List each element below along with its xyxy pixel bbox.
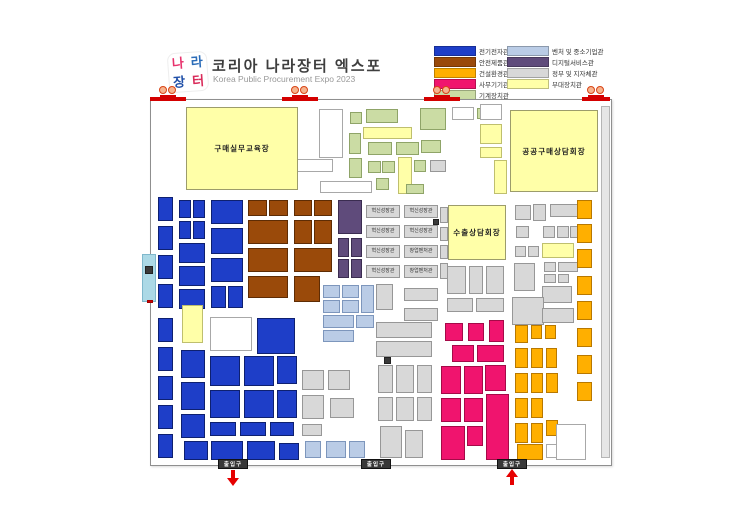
room: 수출상담회장 xyxy=(448,205,506,260)
booth xyxy=(294,220,312,244)
booth xyxy=(515,325,528,343)
booth xyxy=(417,365,432,393)
booth xyxy=(494,160,507,194)
booth xyxy=(477,345,504,362)
entrance-gate xyxy=(282,97,318,101)
mascot-icon xyxy=(291,86,299,94)
booth xyxy=(351,259,362,278)
legend-swatch xyxy=(507,79,549,89)
booth xyxy=(467,426,483,446)
booth xyxy=(248,276,288,298)
labeled-booth: 혁신성장관 xyxy=(404,225,438,238)
legend-swatch xyxy=(507,68,549,78)
booth xyxy=(404,288,438,301)
booth xyxy=(601,106,610,458)
booth xyxy=(396,365,414,393)
booth xyxy=(441,398,461,422)
legend-label: 디지털서비스관 xyxy=(552,57,594,67)
booth xyxy=(269,200,288,216)
booth xyxy=(516,226,529,238)
labeled-booth: 창업벤처관 xyxy=(404,245,438,258)
booth xyxy=(514,263,535,291)
booth xyxy=(464,366,483,394)
booth xyxy=(515,348,528,368)
booth xyxy=(182,305,203,343)
booth xyxy=(384,357,391,364)
booth xyxy=(210,356,240,386)
booth xyxy=(368,161,381,173)
booth-label: 혁신성장관 xyxy=(409,209,432,215)
labeled-booth: 혁신성장관 xyxy=(404,205,438,218)
booth xyxy=(447,298,473,312)
booth xyxy=(184,441,208,460)
booth xyxy=(531,325,542,339)
booth xyxy=(556,424,586,460)
legend-swatch xyxy=(434,57,476,67)
booth xyxy=(480,104,502,120)
booth xyxy=(179,221,191,239)
booth xyxy=(181,414,205,438)
entrance-arrow-down-icon xyxy=(227,478,239,486)
booth xyxy=(445,323,463,341)
booth xyxy=(342,300,359,313)
mascot-icon xyxy=(596,86,604,94)
booth xyxy=(440,207,448,223)
booth xyxy=(179,266,205,286)
booth xyxy=(376,341,432,357)
booth xyxy=(376,178,389,190)
booth xyxy=(577,249,592,268)
booth xyxy=(314,200,332,216)
booth xyxy=(441,366,461,394)
booth xyxy=(338,200,362,234)
mascot-icon xyxy=(300,86,308,94)
booth xyxy=(366,109,398,123)
gate-caption xyxy=(434,95,450,97)
booth xyxy=(531,373,543,393)
booth xyxy=(211,228,243,254)
booth xyxy=(279,443,299,460)
booth xyxy=(528,246,539,257)
booth xyxy=(211,286,226,308)
booth xyxy=(211,441,243,460)
room: 공공구매상담회장 xyxy=(510,110,598,192)
booth xyxy=(158,347,173,371)
entrance-gate xyxy=(424,97,460,101)
booth xyxy=(486,394,509,460)
booth xyxy=(376,284,393,310)
booth xyxy=(145,266,153,274)
booth xyxy=(368,142,392,155)
booth xyxy=(314,220,332,244)
booth xyxy=(543,226,555,238)
labeled-booth: 혁신성장관 xyxy=(366,205,400,218)
booth xyxy=(210,390,240,418)
booth xyxy=(515,373,528,393)
booth-label: 창업벤처관 xyxy=(409,249,432,255)
legend-label: 부대장치관 xyxy=(552,79,582,89)
booth xyxy=(544,262,556,272)
booth xyxy=(452,345,474,362)
booth xyxy=(158,434,173,458)
booth-label: 혁신성장관 xyxy=(371,269,394,275)
booth xyxy=(342,285,359,298)
booth xyxy=(181,350,205,378)
booth xyxy=(512,297,544,325)
booth xyxy=(244,356,274,386)
page-title: 코리아 나라장터 엑스포 xyxy=(212,55,382,76)
booth xyxy=(531,423,543,443)
booth xyxy=(270,422,294,436)
booth xyxy=(577,276,592,295)
room-label: 수출상담회장 xyxy=(453,227,500,238)
booth xyxy=(417,397,432,421)
booth xyxy=(533,204,546,221)
legend-label: 전기전자관 xyxy=(479,46,509,56)
booth xyxy=(577,328,592,347)
booth xyxy=(452,107,474,120)
booth xyxy=(248,248,288,272)
booth xyxy=(558,274,569,283)
legend-swatch xyxy=(507,57,549,67)
entrance-gate xyxy=(150,97,186,101)
booth-label: 혁신성장관 xyxy=(371,229,394,235)
labeled-booth: 혁신성장관 xyxy=(366,245,400,258)
labeled-booth: 혁신성장관 xyxy=(366,265,400,278)
booth-label: 혁신성장관 xyxy=(371,209,394,215)
booth xyxy=(351,238,362,257)
booth xyxy=(211,258,243,282)
booth xyxy=(486,266,504,294)
booth xyxy=(378,365,393,393)
booth xyxy=(244,390,274,418)
legend-label: 사무기기관 xyxy=(479,79,509,89)
booth-label: 혁신성장관 xyxy=(409,229,432,235)
booth xyxy=(179,200,191,218)
booth xyxy=(323,300,340,313)
entrance-label: 출입구 xyxy=(361,459,391,469)
room: 구매실무교육장 xyxy=(186,107,298,190)
booth xyxy=(542,243,574,258)
booth xyxy=(531,348,543,368)
mascot-icon xyxy=(168,86,176,94)
logo-char: 라 xyxy=(190,53,203,71)
booth xyxy=(248,220,288,244)
legend-label: 안전제품관 xyxy=(479,57,509,67)
booth xyxy=(158,197,173,221)
booth xyxy=(240,422,266,436)
booth xyxy=(349,441,365,458)
mascot-icon xyxy=(433,86,441,94)
booth xyxy=(378,397,393,421)
room-label: 공공구매상담회장 xyxy=(522,146,585,157)
booth xyxy=(558,262,578,272)
booth xyxy=(577,382,592,401)
booth xyxy=(577,200,592,219)
booth xyxy=(247,441,275,460)
booth xyxy=(515,205,531,220)
booth xyxy=(545,325,556,339)
booth-label: 혁신성장관 xyxy=(371,249,394,255)
booth xyxy=(349,133,361,154)
booth xyxy=(294,276,320,302)
booth xyxy=(323,315,354,328)
mascot-icon xyxy=(159,86,167,94)
booth xyxy=(210,317,252,351)
booth xyxy=(577,301,592,320)
booth xyxy=(193,221,205,239)
booth xyxy=(328,370,350,390)
booth xyxy=(577,355,592,374)
booth xyxy=(158,226,173,250)
booth xyxy=(480,124,502,144)
booth xyxy=(380,426,402,458)
booth xyxy=(557,226,569,238)
booth xyxy=(142,254,156,302)
page-subtitle: Korea Public Procurement Expo 2023 xyxy=(213,74,355,84)
labeled-booth: 창업벤처관 xyxy=(404,265,438,278)
booth xyxy=(210,422,236,436)
booth xyxy=(302,424,322,436)
booth xyxy=(356,315,374,328)
booth xyxy=(323,330,354,342)
booth xyxy=(476,298,504,312)
booth xyxy=(440,227,448,241)
booth xyxy=(464,398,483,422)
entrance-gate xyxy=(582,97,610,101)
booth xyxy=(294,200,312,216)
booth xyxy=(468,323,484,341)
booth xyxy=(330,398,354,418)
entrance-label: 출입구 xyxy=(218,459,248,469)
booth xyxy=(433,219,439,225)
booth xyxy=(158,284,173,308)
entrance-label: 출입구 xyxy=(497,459,527,469)
booth xyxy=(302,370,324,390)
booth xyxy=(420,108,446,130)
legend-swatch xyxy=(507,46,549,56)
booth xyxy=(211,200,243,224)
booth xyxy=(447,266,466,294)
booth xyxy=(361,285,374,313)
booth xyxy=(323,285,340,298)
room-label: 구매실무교육장 xyxy=(214,143,269,154)
booth xyxy=(544,274,556,283)
legend-label: 건설환경관 xyxy=(479,68,509,78)
booth xyxy=(277,356,297,384)
logo-char: 터 xyxy=(192,72,205,90)
booth xyxy=(550,204,580,217)
booth xyxy=(515,398,528,418)
booth xyxy=(179,243,205,263)
booth xyxy=(338,259,349,278)
booth xyxy=(158,255,173,279)
booth xyxy=(404,308,438,321)
booth xyxy=(277,390,297,418)
booth xyxy=(349,158,362,178)
booth xyxy=(469,266,483,294)
entrance-arrow-down-icon xyxy=(231,470,235,478)
legend-label: 정부 및 지자체관 xyxy=(552,68,597,78)
booth xyxy=(319,109,343,158)
booth-label: 창업벤처관 xyxy=(409,269,432,275)
booth xyxy=(485,365,506,391)
booth xyxy=(248,200,267,216)
booth xyxy=(257,318,295,354)
booth xyxy=(515,423,528,443)
booth xyxy=(405,430,423,458)
booth xyxy=(531,398,543,418)
booth xyxy=(338,238,349,257)
legend-label: 벤처 및 중소기업관 xyxy=(552,46,603,56)
booth xyxy=(542,308,574,323)
booth xyxy=(193,200,205,218)
booth xyxy=(305,441,321,458)
labeled-booth: 혁신성장관 xyxy=(366,225,400,238)
booth xyxy=(396,397,414,421)
logo-char: 나 xyxy=(171,54,184,72)
expo-floor-plan-page: { "header": { "title": "코리아 나라장터 엑스포", "… xyxy=(0,0,750,530)
booth xyxy=(577,224,592,243)
booth xyxy=(480,147,502,158)
booth xyxy=(517,444,543,460)
gate-caption xyxy=(292,95,308,97)
booth xyxy=(326,441,346,458)
booth xyxy=(441,426,465,460)
booth xyxy=(542,286,572,303)
legend-swatch xyxy=(434,46,476,56)
booth xyxy=(546,348,557,368)
booth xyxy=(181,382,205,410)
booth xyxy=(294,248,332,272)
booth xyxy=(546,373,558,393)
booth xyxy=(414,160,426,172)
booth xyxy=(515,246,526,257)
booth xyxy=(396,142,419,155)
mascot-icon xyxy=(587,86,595,94)
booth xyxy=(440,245,448,259)
booth xyxy=(382,161,395,173)
booth xyxy=(350,112,362,124)
booth xyxy=(228,286,243,308)
booth xyxy=(376,322,432,338)
booth xyxy=(295,159,333,172)
booth xyxy=(147,300,153,303)
booth xyxy=(430,160,446,172)
booth xyxy=(158,405,173,429)
booth xyxy=(302,395,324,419)
booth xyxy=(406,184,424,194)
gate-caption xyxy=(160,95,176,97)
gate-caption xyxy=(588,95,604,97)
booth xyxy=(489,320,504,342)
booth xyxy=(363,127,412,139)
booth xyxy=(320,181,372,193)
entrance-arrow-up-icon xyxy=(506,469,518,477)
booth xyxy=(158,318,173,342)
mascot-icon xyxy=(442,86,450,94)
entrance-arrow-up-icon xyxy=(510,477,514,485)
booth xyxy=(158,376,173,400)
booth xyxy=(421,140,441,153)
legend-swatch xyxy=(434,68,476,78)
